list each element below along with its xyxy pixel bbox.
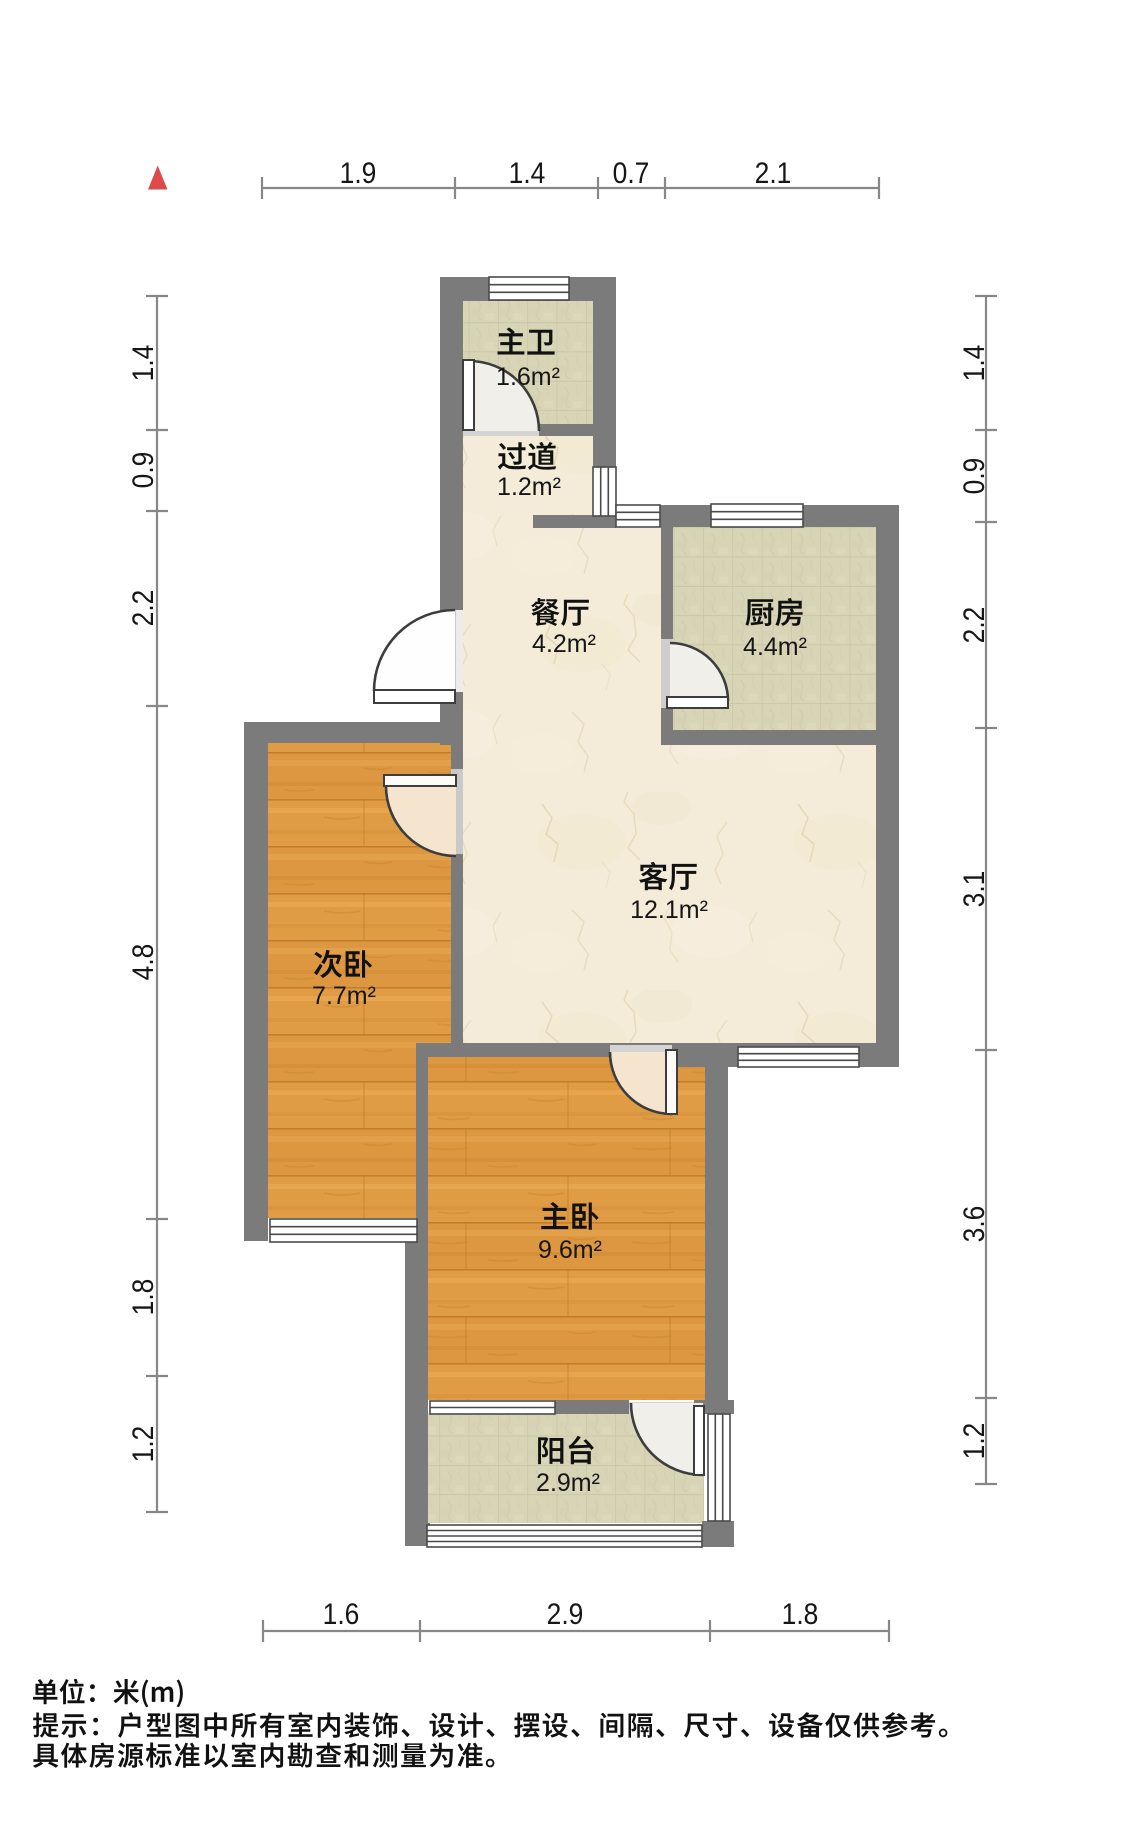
svg-text:2.9m²: 2.9m² bbox=[536, 1469, 600, 1497]
svg-text:1.4: 1.4 bbox=[509, 155, 546, 189]
svg-text:4.8: 4.8 bbox=[125, 944, 159, 981]
svg-text:2.2: 2.2 bbox=[956, 607, 990, 644]
svg-text:2.1: 2.1 bbox=[755, 155, 792, 189]
svg-text:1.6: 1.6 bbox=[323, 1596, 360, 1630]
svg-text:4.4m²: 4.4m² bbox=[743, 633, 807, 661]
svg-text:1.2: 1.2 bbox=[125, 1426, 159, 1463]
svg-text:0.7: 0.7 bbox=[613, 155, 650, 189]
svg-text:1.4: 1.4 bbox=[956, 345, 990, 382]
svg-text:2.9: 2.9 bbox=[547, 1596, 584, 1630]
svg-text:1.6m²: 1.6m² bbox=[496, 363, 560, 391]
svg-text:1.8: 1.8 bbox=[782, 1596, 819, 1630]
svg-text:2.2: 2.2 bbox=[125, 590, 159, 627]
svg-text:3.1: 3.1 bbox=[956, 871, 990, 908]
svg-text:9.6m²: 9.6m² bbox=[538, 1236, 602, 1264]
svg-text:0.9: 0.9 bbox=[956, 458, 990, 495]
svg-text:1.9: 1.9 bbox=[340, 155, 377, 189]
svg-text:1.8: 1.8 bbox=[125, 1279, 159, 1316]
svg-text:7.7m²: 7.7m² bbox=[312, 982, 376, 1010]
svg-text:4.2m²: 4.2m² bbox=[532, 630, 596, 658]
svg-text:0.9: 0.9 bbox=[125, 452, 159, 489]
svg-text:12.1m²: 12.1m² bbox=[630, 896, 708, 924]
svg-text:1.2m²: 1.2m² bbox=[497, 473, 561, 501]
svg-text:1.2: 1.2 bbox=[956, 1423, 990, 1460]
svg-text:1.4: 1.4 bbox=[125, 345, 159, 382]
svg-text:3.6: 3.6 bbox=[956, 1206, 990, 1243]
